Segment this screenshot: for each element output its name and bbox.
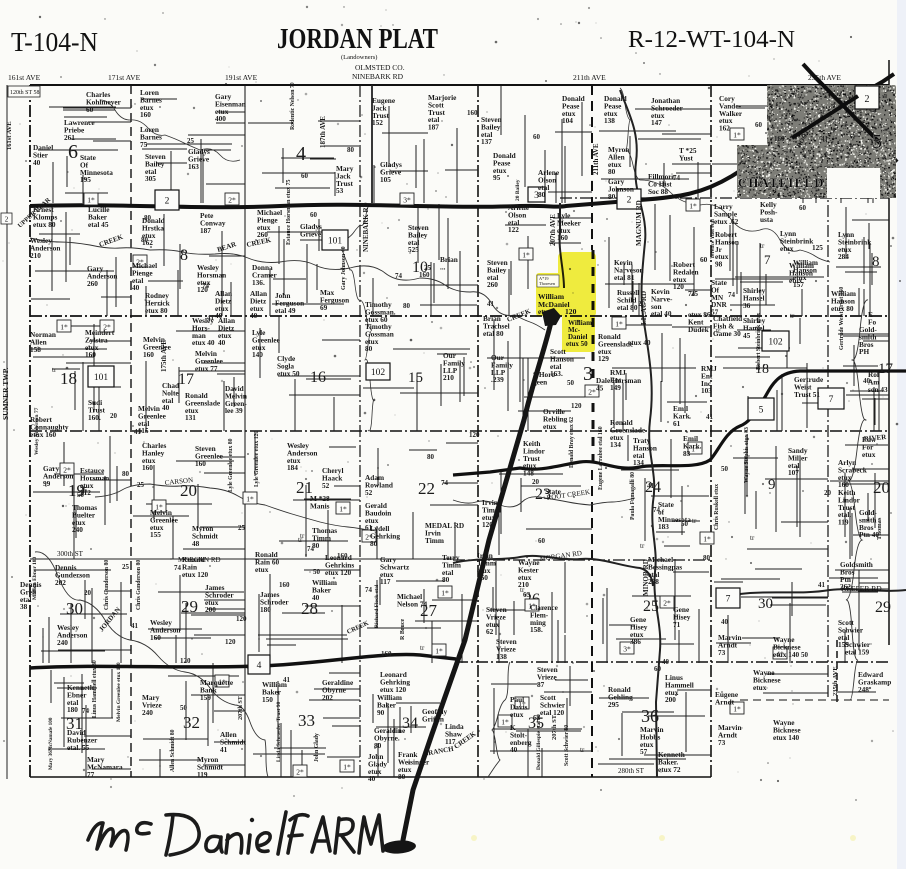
svg-text:284: 284 — [838, 252, 849, 261]
svg-text:160: 160 — [142, 463, 153, 472]
svg-text:40: 40 — [721, 618, 729, 626]
svg-text:2: 2 — [5, 216, 9, 224]
svg-text:Thoresen: Thoresen — [539, 281, 556, 286]
svg-text:80: 80 — [608, 192, 616, 201]
svg-text:Estauce Horsman etux 75: Estauce Horsman etux 75 — [286, 180, 292, 246]
svg-text:etux 140: etux 140 — [773, 733, 799, 742]
svg-text:120: 120 — [225, 638, 236, 646]
svg-text:tr: tr — [760, 242, 765, 250]
svg-text:1*: 1* — [703, 535, 711, 544]
svg-text:36: 36 — [641, 706, 659, 726]
svg-text:tr: tr — [750, 534, 755, 542]
svg-text:etux: etux — [862, 450, 876, 459]
svg-text:tr: tr — [716, 327, 721, 335]
svg-text:210: 210 — [443, 373, 454, 382]
svg-text:180: 180 — [67, 705, 78, 714]
svg-text:Chris Ruskell etux: Chris Ruskell etux — [714, 484, 720, 530]
svg-text:tr: tr — [52, 366, 57, 374]
svg-text:240: 240 — [142, 708, 153, 717]
svg-text:195: 195 — [80, 175, 91, 184]
svg-text:36: 36 — [743, 301, 751, 310]
svg-text:etal 49: etal 49 — [275, 306, 296, 315]
svg-text:202: 202 — [322, 693, 333, 702]
svg-text:95: 95 — [493, 173, 501, 182]
svg-text:T-104-N: T-104-N — [11, 27, 98, 57]
svg-text:71: 71 — [673, 620, 681, 629]
svg-text:29: 29 — [181, 597, 198, 616]
svg-text:etux: etux — [510, 710, 524, 719]
svg-text:147: 147 — [651, 118, 662, 127]
svg-text:171st AVE: 171st AVE — [108, 73, 141, 82]
svg-text:40: 40 — [132, 283, 140, 292]
svg-text:40: 40 — [863, 377, 871, 385]
svg-text:40: 40 — [368, 774, 376, 783]
svg-text:160: 160 — [143, 350, 154, 359]
svg-text:Linus Hammell etux 80: Linus Hammell etux 80 — [92, 660, 98, 718]
svg-text:1*: 1* — [522, 251, 530, 260]
svg-text:etux 80: etux 80 — [145, 306, 168, 315]
svg-text:260: 260 — [87, 279, 98, 288]
svg-text:138: 138 — [496, 652, 507, 661]
svg-text:etal 80: etal 80 — [483, 329, 504, 338]
svg-text:20: 20 — [824, 489, 832, 497]
svg-text:122: 122 — [508, 225, 519, 234]
svg-text:50: 50 — [567, 379, 575, 387]
svg-text:Donald Bray etux 62: Donald Bray etux 62 — [569, 417, 575, 468]
svg-text:80: 80 — [347, 146, 355, 154]
svg-text:102: 102 — [768, 338, 783, 348]
svg-text:R Bruce: R Bruce — [400, 619, 406, 640]
svg-text:6: 6 — [68, 141, 78, 163]
svg-text:etux 40: etux 40 — [628, 338, 651, 347]
svg-text:80: 80 — [442, 575, 450, 584]
svg-text:107: 107 — [788, 468, 799, 477]
svg-text:2*: 2* — [588, 388, 596, 397]
svg-text:PH: PH — [859, 347, 869, 356]
svg-text:131: 131 — [185, 413, 196, 422]
svg-text:80: 80 — [370, 539, 378, 548]
svg-text:1*: 1* — [246, 495, 254, 504]
svg-text:Yust: Yust — [679, 153, 693, 162]
svg-text:7: 7 — [764, 252, 771, 267]
svg-text:80: 80 — [538, 190, 546, 199]
svg-text:45: 45 — [743, 331, 751, 340]
svg-text:52: 52 — [322, 481, 330, 490]
svg-text:Linda Schroeder Trust 90: Linda Schroeder Trust 90 — [276, 701, 282, 762]
svg-text:28: 28 — [301, 599, 318, 618]
svg-text:75: 75 — [140, 140, 148, 149]
svg-text:(Landowners): (Landowners) — [341, 54, 377, 61]
svg-text:45: 45 — [596, 383, 604, 392]
svg-text:Terence Yust etal: Terence Yust etal — [710, 219, 716, 259]
svg-text:3: 3 — [583, 363, 593, 385]
svg-text:41: 41 — [706, 413, 714, 421]
svg-text:25: 25 — [238, 524, 246, 532]
svg-text:200: 200 — [665, 695, 676, 704]
svg-text:25: 25 — [122, 563, 130, 571]
svg-text:120: 120 — [236, 615, 247, 623]
svg-text:83: 83 — [683, 449, 691, 458]
svg-text:etux: etux — [543, 422, 557, 431]
svg-text:400: 400 — [215, 114, 226, 123]
svg-text:187th AVE: 187th AVE — [319, 116, 327, 148]
svg-text:etux .62: etux .62 — [714, 217, 739, 226]
svg-text:74: 74 — [673, 174, 681, 182]
svg-text:280th ST: 280th ST — [618, 767, 645, 775]
svg-text:120: 120 — [180, 657, 191, 665]
svg-text:77: 77 — [87, 770, 95, 779]
svg-text:80: 80 — [365, 344, 373, 353]
svg-text:Lyle Greenlee etux 80: Lyle Greenlee etux 80 — [228, 438, 234, 492]
svg-text:tr: tr — [520, 586, 525, 594]
svg-text:etal 80: etal 80 — [617, 303, 638, 312]
svg-text:74: 74 — [202, 282, 210, 290]
svg-text:17: 17 — [178, 371, 194, 388]
svg-text:160: 160 — [774, 135, 785, 143]
svg-text:.239: .239 — [491, 375, 504, 384]
svg-text:41: 41 — [647, 482, 655, 490]
svg-text:Chris Gunderson 80: Chris Gunderson 80 — [104, 560, 110, 610]
svg-text:60: 60 — [310, 211, 318, 219]
svg-text:525: 525 — [408, 245, 419, 254]
svg-text:235th AVE: 235th AVE — [832, 666, 839, 696]
svg-text:74: 74 — [307, 545, 315, 553]
svg-text:20: 20 — [84, 589, 92, 597]
svg-text:129: 129 — [598, 354, 609, 363]
svg-text:41: 41 — [821, 135, 829, 143]
svg-text:125: 125 — [812, 243, 823, 252]
svg-text:R-12-WT-104-N: R-12-WT-104-N — [628, 27, 795, 53]
svg-text:Robert Steinbrink etux: Robert Steinbrink etux — [756, 313, 762, 370]
svg-text:48: 48 — [192, 539, 200, 548]
svg-text:41: 41 — [207, 314, 215, 322]
svg-text:tr: tr — [580, 746, 585, 754]
svg-text:60: 60 — [533, 133, 541, 141]
svg-text:30: 30 — [66, 599, 83, 618]
svg-text:MINOR RD: MINOR RD — [642, 559, 650, 596]
svg-text:52: 52 — [365, 488, 373, 497]
svg-text:Nelson 74: Nelson 74 — [397, 599, 428, 608]
svg-text:20 Bailey: 20 Bailey — [515, 179, 521, 201]
svg-text:40: 40 — [312, 593, 320, 602]
svg-text:99: 99 — [43, 479, 51, 488]
svg-text:NINEBARK RD: NINEBARK RD — [352, 72, 404, 81]
svg-text:Lyle Greenlee etux 120: Lyle Greenlee etux 120 — [254, 430, 260, 487]
svg-text:160: 160 — [195, 459, 206, 468]
svg-text:120: 120 — [571, 402, 582, 410]
svg-text:1*: 1* — [87, 196, 95, 205]
svg-text:240: 240 — [72, 525, 83, 534]
svg-text:3*: 3* — [403, 196, 411, 205]
svg-text:101: 101 — [328, 237, 343, 247]
svg-text:Trust 51: Trust 51 — [794, 390, 820, 399]
svg-text:80: 80 — [374, 741, 382, 750]
svg-text:74: 74 — [653, 506, 661, 514]
svg-text:Grieve: Grieve — [300, 229, 322, 238]
svg-text:295: 295 — [608, 700, 619, 709]
svg-text:98: 98 — [715, 260, 723, 269]
svg-text:5: 5 — [759, 406, 764, 416]
svg-text:15: 15 — [408, 370, 423, 386]
svg-text:tr: tr — [420, 644, 425, 652]
svg-text:119: 119 — [197, 770, 208, 779]
svg-text:1*: 1* — [339, 505, 347, 514]
svg-text:4: 4 — [296, 143, 306, 165]
svg-text:138: 138 — [604, 116, 615, 125]
svg-text:160: 160 — [381, 650, 392, 658]
svg-text:41: 41 — [134, 428, 142, 436]
svg-text:150: 150 — [262, 695, 273, 704]
svg-text:2: 2 — [165, 197, 170, 207]
svg-text:50: 50 — [801, 651, 809, 659]
svg-text:etal 45: etal 45 — [88, 220, 109, 229]
svg-text:105: 105 — [380, 175, 391, 184]
svg-text:Wayne Stephis etux 83: Wayne Stephis etux 83 — [744, 427, 750, 483]
svg-text:Soc 88: Soc 88 — [648, 187, 668, 196]
svg-text:2*: 2* — [663, 599, 671, 608]
svg-text:16: 16 — [310, 369, 326, 386]
svg-text:53: 53 — [336, 186, 344, 195]
svg-text:137: 137 — [481, 137, 492, 146]
svg-text:etux 80: etux 80 — [33, 220, 56, 229]
svg-text:207th ST: 207th ST — [237, 695, 244, 720]
svg-text:Gertrude Weist Trust 160: Gertrude Weist Trust 160 — [839, 287, 845, 350]
svg-text:235th AVE: 235th AVE — [808, 73, 841, 82]
svg-text:248: 248 — [858, 685, 869, 694]
svg-text:60: 60 — [755, 121, 763, 129]
svg-text:40: 40 — [33, 158, 41, 167]
svg-text:158.: 158. — [530, 625, 543, 634]
svg-text:40: 40 — [250, 311, 258, 320]
svg-text:etux 120: etux 120 — [182, 570, 208, 579]
svg-text:74: 74 — [395, 272, 403, 280]
svg-text:41: 41 — [818, 581, 826, 589]
svg-text:80: 80 — [144, 214, 152, 222]
svg-text:160: 160 — [150, 633, 161, 642]
svg-text:30: 30 — [758, 596, 773, 612]
svg-text:50: 50 — [721, 465, 729, 473]
svg-text:119: 119 — [838, 518, 849, 527]
svg-text:22: 22 — [418, 479, 435, 498]
svg-text:Paula Fumagalli 80: Paula Fumagalli 80 — [630, 472, 636, 520]
svg-text:Dudek: Dudek — [688, 325, 710, 334]
svg-text:KEEPER RD: KEEPER RD — [841, 584, 882, 593]
svg-text:etux 77: etux 77 — [195, 364, 218, 373]
svg-text:etux 140: etux 140 — [773, 650, 799, 659]
svg-text:74: 74 — [441, 479, 449, 487]
svg-text:160: 160 — [419, 271, 430, 279]
svg-text:60: 60 — [86, 105, 94, 114]
svg-text:160: 160 — [85, 350, 96, 359]
svg-text:60: 60 — [301, 172, 309, 180]
svg-text:SUMNER TWP.: SUMNER TWP. — [1, 367, 10, 420]
svg-text:148: 148 — [523, 469, 534, 478]
svg-text:187: 187 — [200, 226, 211, 235]
svg-text:41: 41 — [487, 300, 495, 308]
svg-text:162: 162 — [719, 124, 730, 133]
svg-text:74: 74 — [728, 291, 736, 299]
svg-text:8: 8 — [872, 254, 880, 270]
svg-text:usta: usta — [760, 215, 773, 224]
svg-text:134: 134 — [610, 440, 621, 449]
svg-text:Timm: Timm — [425, 536, 444, 545]
svg-text:MAGNUM RD: MAGNUM RD — [635, 200, 643, 246]
svg-text:Arndt: Arndt — [715, 697, 735, 706]
svg-text:Chris Gunderson 80: Chris Gunderson 80 — [136, 560, 142, 610]
svg-text:1*: 1* — [501, 718, 509, 727]
svg-text:etal 40: etal 40 — [651, 309, 672, 318]
svg-text:184: 184 — [287, 463, 298, 472]
svg-text:149: 149 — [610, 383, 621, 392]
svg-text:260: 260 — [487, 280, 498, 289]
svg-text:117: 117 — [380, 577, 391, 586]
svg-text:etal. 55: etal. 55 — [67, 743, 90, 752]
svg-text:240: 240 — [57, 638, 68, 647]
svg-text:158: 158 — [30, 345, 41, 354]
svg-text:159: 159 — [200, 693, 211, 702]
svg-text:50: 50 — [77, 491, 85, 499]
svg-text:60: 60 — [700, 255, 708, 264]
svg-text:136.: 136. — [252, 278, 265, 287]
svg-text:161st AVE: 161st AVE — [6, 121, 13, 150]
svg-text:etal 81: etal 81 — [614, 273, 635, 282]
svg-text:40: 40 — [510, 745, 518, 754]
svg-text:74: 74 — [82, 707, 90, 715]
svg-text:183: 183 — [658, 522, 669, 531]
svg-text:Allen Schmidt 80: Allen Schmidt 80 — [170, 729, 176, 772]
svg-text:JORDAN PLAT: JORDAN PLAT — [277, 24, 438, 55]
svg-text:1*: 1* — [441, 589, 449, 598]
svg-text:60: 60 — [799, 204, 807, 212]
svg-text:2: 2 — [627, 196, 632, 206]
svg-text:25: 25 — [691, 290, 699, 298]
svg-text:Gary Johnson 40: Gary Johnson 40 — [341, 246, 347, 290]
svg-text:80: 80 — [141, 236, 149, 244]
svg-text:2*: 2* — [228, 196, 236, 205]
svg-text:18: 18 — [60, 369, 77, 388]
svg-text:2*: 2* — [296, 768, 304, 777]
svg-text:Melvin Greenlee etux 110: Melvin Greenlee etux 110 — [116, 662, 122, 722]
svg-text:41: 41 — [131, 622, 139, 630]
svg-text:etux 72: etux 72 — [658, 765, 681, 774]
svg-text:120: 120 — [673, 282, 684, 291]
svg-text:160: 160 — [467, 109, 478, 117]
svg-text:Scott Schwier 80: Scott Schwier 80 — [564, 725, 570, 766]
svg-text:tr: tr — [640, 542, 645, 550]
svg-text:8: 8 — [180, 247, 188, 264]
svg-text:120: 120 — [469, 431, 480, 439]
svg-text:Rodentic Nelson 70: Rodentic Nelson 70 — [290, 82, 296, 130]
svg-text:160: 160 — [557, 233, 568, 242]
svg-text:20: 20 — [532, 478, 540, 486]
svg-text:90: 90 — [377, 708, 385, 717]
svg-text:101: 101 — [94, 373, 109, 383]
svg-text:261: 261 — [64, 133, 75, 142]
svg-text:1*: 1* — [733, 131, 741, 140]
svg-text:80: 80 — [608, 167, 616, 176]
svg-text:207th ST: 207th ST — [551, 714, 558, 740]
svg-text:tr: tr — [692, 517, 697, 525]
svg-text:MORGAN RD: MORGAN RD — [178, 556, 221, 564]
svg-text:152: 152 — [372, 118, 383, 127]
svg-text:74: 74 — [174, 564, 182, 572]
svg-text:20: 20 — [638, 300, 646, 308]
svg-text:210: 210 — [30, 251, 41, 260]
svg-text:40: 40 — [662, 658, 670, 666]
svg-text:25: 25 — [187, 137, 195, 145]
svg-text:etux: etux — [789, 276, 803, 285]
svg-text:120: 120 — [565, 307, 577, 316]
svg-text:73: 73 — [718, 648, 726, 657]
svg-text:7: 7 — [726, 595, 731, 605]
svg-text:180: 180 — [260, 605, 271, 614]
svg-text:etux 40: etux 40 — [192, 338, 215, 347]
svg-text:son 43: son 43 — [868, 385, 888, 394]
svg-text:134: 134 — [633, 458, 644, 467]
svg-text:etux 50: etux 50 — [277, 369, 300, 378]
svg-text:57: 57 — [640, 747, 648, 756]
svg-text:etux 120: etux 120 — [325, 568, 351, 577]
svg-text:80: 80 — [427, 453, 435, 461]
svg-text:140: 140 — [252, 350, 263, 359]
svg-text:103: 103 — [701, 386, 712, 395]
svg-text:300th ST: 300th ST — [57, 550, 84, 558]
svg-text:33: 33 — [298, 711, 315, 730]
svg-text:NINEBARK RD: NINEBARK RD — [362, 202, 370, 252]
svg-text:Richard Fleck etal: Richard Fleck etal — [374, 584, 380, 628]
svg-text:etal 159: etal 159 — [845, 647, 869, 656]
svg-text:80: 80 — [122, 470, 130, 478]
svg-text:62: 62 — [486, 627, 494, 636]
svg-text:38: 38 — [20, 602, 28, 611]
svg-text:etux: etux — [255, 565, 269, 574]
svg-text:Eugene Larrabee etal 160: Eugene Larrabee etal 160 — [598, 426, 604, 490]
svg-text:Thomas: Thomas — [876, 517, 883, 540]
svg-text:191st AVE: 191st AVE — [225, 73, 258, 82]
svg-text:161st AVE: 161st AVE — [8, 73, 41, 82]
svg-text:73: 73 — [718, 738, 726, 747]
svg-text:7: 7 — [829, 395, 834, 405]
svg-text:5: 5 — [872, 131, 882, 153]
svg-text:etux: etux — [780, 244, 794, 253]
svg-text:1*: 1* — [733, 705, 741, 714]
svg-text:207th AVE: 207th AVE — [549, 214, 557, 246]
svg-text:1*: 1* — [689, 202, 697, 211]
svg-text:32: 32 — [183, 713, 200, 732]
svg-text:160: 160 — [140, 110, 151, 119]
svg-text:25: 25 — [137, 481, 145, 489]
svg-text:John Glady: John Glady — [314, 733, 320, 762]
svg-text:69: 69 — [320, 303, 328, 312]
svg-text:Donald Gillespie etal 80: Donald Gillespie etal 80 — [536, 714, 542, 770]
svg-text:1*: 1* — [615, 320, 623, 329]
svg-text:60: 60 — [654, 665, 662, 673]
svg-text:1*: 1* — [435, 647, 443, 656]
svg-text:61: 61 — [673, 419, 681, 428]
svg-text:60: 60 — [538, 537, 546, 545]
svg-text:1*: 1* — [60, 323, 68, 332]
svg-text:Manis: Manis — [310, 501, 330, 510]
svg-text:9: 9 — [768, 477, 776, 493]
svg-text:50: 50 — [180, 704, 188, 712]
svg-text:187: 187 — [428, 123, 439, 132]
svg-text:40: 40 — [218, 338, 226, 347]
svg-text:25: 25 — [643, 598, 659, 615]
svg-text:160: 160 — [279, 581, 290, 589]
svg-text:200: 200 — [205, 605, 216, 614]
svg-text:1*: 1* — [343, 763, 351, 772]
svg-text:41: 41 — [220, 745, 228, 754]
